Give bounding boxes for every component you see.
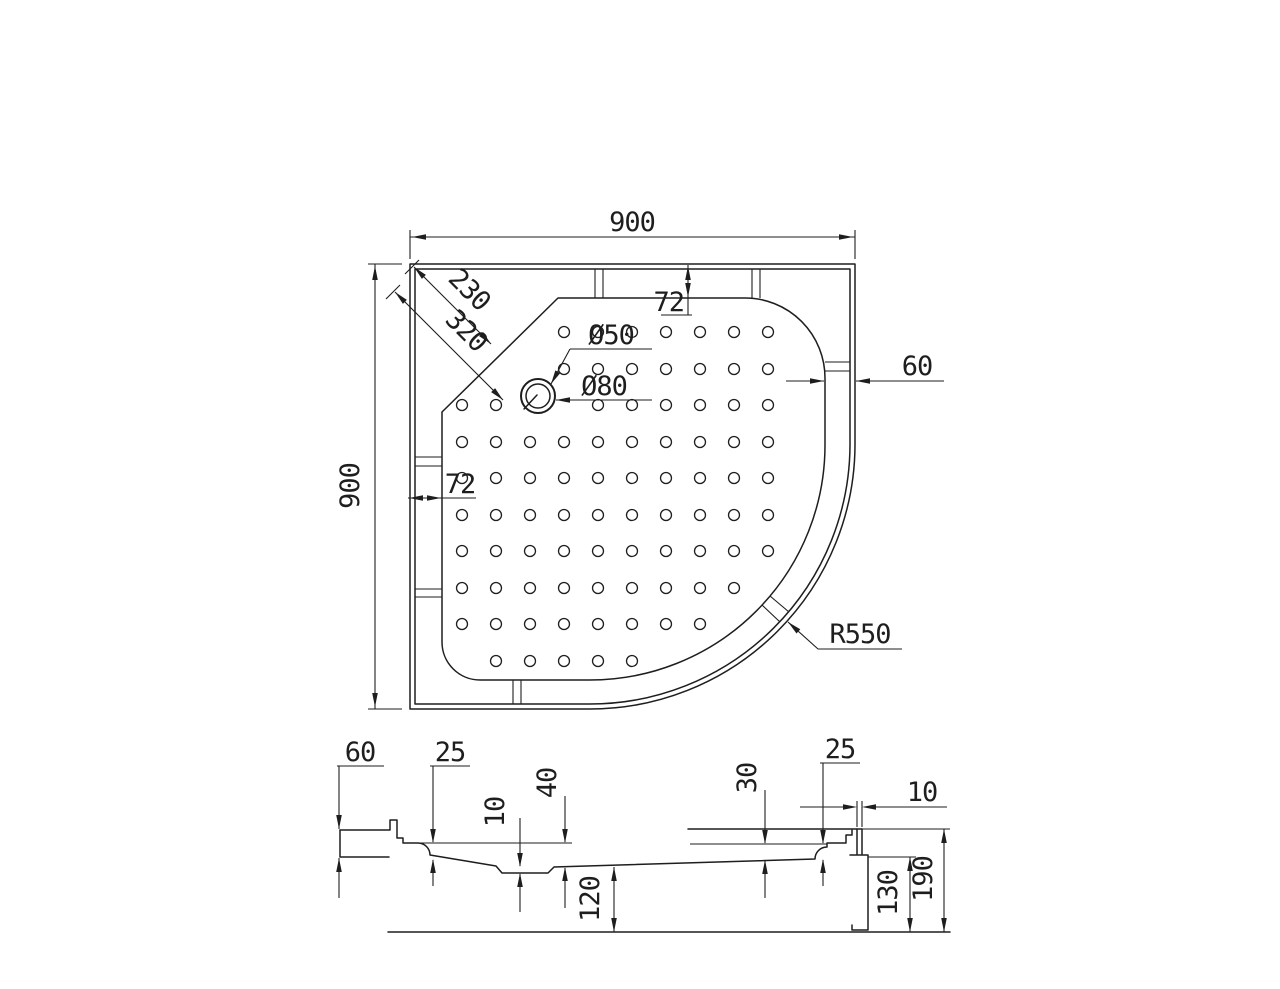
anti-slip-dot xyxy=(729,510,740,521)
dim-drain-hole-label: Ø50 xyxy=(588,320,634,351)
dim-right-floor-drop: 30 xyxy=(732,763,765,898)
drain-inner-circle xyxy=(526,384,550,408)
dim-skirt-height: 130 xyxy=(873,857,910,932)
anti-slip-dot xyxy=(491,619,502,630)
arrowhead xyxy=(412,234,426,240)
anti-slip-dot xyxy=(525,546,536,557)
anti-slip-dot xyxy=(763,473,774,484)
dim-top-frame: 72 xyxy=(653,265,692,318)
dim-corner-radius: R550 xyxy=(788,619,902,650)
anti-slip-dot xyxy=(491,583,502,594)
dim-drain-flange: Ø80 xyxy=(556,371,652,402)
arrowhead xyxy=(409,495,423,501)
anti-slip-dot xyxy=(695,546,706,557)
anti-slip-dot xyxy=(457,437,468,448)
anti-slip-dot xyxy=(695,400,706,411)
dim-top-frame-label: 72 xyxy=(653,287,684,318)
arrowhead xyxy=(412,265,426,279)
anti-slip-dot xyxy=(491,510,502,521)
anti-slip-dot xyxy=(627,364,638,375)
arrowhead xyxy=(517,853,523,867)
anti-slip-dot xyxy=(525,656,536,667)
arrowhead xyxy=(611,918,617,932)
anti-slip-dot xyxy=(627,656,638,667)
anti-slip-dot xyxy=(763,400,774,411)
anti-slip-dot xyxy=(593,437,604,448)
anti-slip-dot xyxy=(593,619,604,630)
arrowhead xyxy=(862,804,876,810)
anti-slip-dot xyxy=(559,656,570,667)
arrowhead xyxy=(820,859,826,873)
anti-slip-dot xyxy=(729,400,740,411)
arrowhead xyxy=(839,234,853,240)
dim-sump-depth: 10 xyxy=(480,797,520,912)
shower-tray-technical-drawing: 900 900 230 320 Ø50 Ø80 72 xyxy=(0,0,1280,989)
dim-230-label: 230 xyxy=(442,263,496,317)
dim-overall-height-section: 190 xyxy=(908,829,944,932)
arrowhead xyxy=(907,918,913,932)
anti-slip-dot xyxy=(525,437,536,448)
anti-slip-dot xyxy=(729,437,740,448)
anti-slip-dot xyxy=(491,437,502,448)
anti-slip-dot xyxy=(491,656,502,667)
anti-slip-dot xyxy=(695,619,706,630)
anti-slip-dot xyxy=(627,619,638,630)
dim-right-rim-drop: 25 xyxy=(820,734,860,886)
dim-right-rim-drop-label: 25 xyxy=(825,734,856,765)
anti-slip-dot xyxy=(593,473,604,484)
anti-slip-dot xyxy=(593,546,604,557)
arrowhead xyxy=(856,378,870,384)
dim-skirt-height-label: 130 xyxy=(873,870,904,916)
arrowhead xyxy=(762,830,768,844)
dim-left-rim-drop: 25 xyxy=(430,737,470,886)
anti-slip-dot xyxy=(661,437,672,448)
arrowhead xyxy=(430,829,436,843)
dim-right-frame-label: 60 xyxy=(902,351,933,382)
arrowhead xyxy=(393,290,407,304)
anti-slip-dot xyxy=(559,364,570,375)
dim-drain-flange-label: Ø80 xyxy=(581,371,627,402)
dim-bowl-depth: 120 xyxy=(575,867,614,932)
anti-slip-dot xyxy=(627,400,638,411)
arrowhead xyxy=(843,804,857,810)
arrowhead xyxy=(430,859,436,873)
dim-overall-width-label: 900 xyxy=(609,207,655,238)
arrowhead xyxy=(810,378,824,384)
dim-floor-drop: 40 xyxy=(532,768,565,908)
arrowhead xyxy=(372,266,378,280)
arrowhead xyxy=(427,495,441,501)
anti-slip-dot xyxy=(457,546,468,557)
anti-slip-dot xyxy=(763,510,774,521)
anti-slip-dot xyxy=(559,510,570,521)
anti-slip-dot xyxy=(593,656,604,667)
anti-slip-dot xyxy=(695,583,706,594)
anti-slip-dot xyxy=(661,364,672,375)
anti-slip-dot xyxy=(559,473,570,484)
arrowhead xyxy=(562,867,568,881)
anti-slip-dot xyxy=(559,327,570,338)
dim-right-floor-drop-label: 30 xyxy=(732,763,763,794)
arrowhead xyxy=(762,860,768,874)
anti-slip-dot xyxy=(525,583,536,594)
anti-slip-dot xyxy=(559,583,570,594)
anti-slip-dot xyxy=(559,437,570,448)
anti-slip-dot xyxy=(661,583,672,594)
dim-320-label: 320 xyxy=(439,304,493,358)
dim-overall-height: 900 xyxy=(335,264,402,709)
arrowhead xyxy=(336,858,342,872)
anti-slip-dot xyxy=(695,437,706,448)
dim-bowl-depth-label: 120 xyxy=(575,876,606,922)
arrowhead xyxy=(556,397,570,403)
dim-floor-drop-label: 40 xyxy=(532,768,563,799)
anti-slip-dot xyxy=(627,583,638,594)
anti-slip-dot xyxy=(627,437,638,448)
anti-slip-dot xyxy=(763,437,774,448)
anti-slip-dot xyxy=(729,546,740,557)
anti-slip-dot xyxy=(661,510,672,521)
anti-slip-dot xyxy=(661,473,672,484)
dim-ledge-height: 60 xyxy=(337,737,384,898)
anti-slip-dot xyxy=(661,546,672,557)
anti-slip-dot xyxy=(695,510,706,521)
anti-slip-dot xyxy=(457,400,468,411)
anti-slip-dot xyxy=(661,327,672,338)
anti-slip-dot xyxy=(661,619,672,630)
anti-slip-dot xyxy=(491,546,502,557)
anti-slip-dot xyxy=(763,327,774,338)
anti-slip-dot xyxy=(593,510,604,521)
anti-slip-dot xyxy=(627,510,638,521)
anti-slip-dot xyxy=(729,473,740,484)
anti-slip-dot xyxy=(491,400,502,411)
anti-slip-dot xyxy=(627,473,638,484)
dim-overall-width: 900 xyxy=(410,207,855,259)
arrowhead xyxy=(941,829,947,843)
anti-slip-dot xyxy=(661,400,672,411)
dim-overall-height-label: 900 xyxy=(335,463,366,509)
anti-slip-dot xyxy=(559,619,570,630)
arrowhead xyxy=(562,829,568,843)
anti-slip-dot xyxy=(695,473,706,484)
dim-left-rim-drop-label: 25 xyxy=(435,737,466,768)
arrowhead xyxy=(336,815,342,829)
anti-slip-dot xyxy=(729,583,740,594)
arrowhead xyxy=(372,693,378,707)
arrowhead xyxy=(685,266,691,280)
anti-slip-dot xyxy=(729,364,740,375)
section-view: 60 25 10 40 120 30 25 10 xyxy=(337,734,950,932)
anti-slip-dot xyxy=(491,473,502,484)
drain xyxy=(521,379,555,413)
section-profile xyxy=(340,820,950,932)
anti-slip-dot xyxy=(593,583,604,594)
anti-slip-dot xyxy=(525,473,536,484)
dim-sump-depth-label: 10 xyxy=(480,797,511,828)
anti-slip-dot xyxy=(457,510,468,521)
anti-slip-dot xyxy=(457,583,468,594)
anti-slip-dot xyxy=(763,546,774,557)
arrowhead xyxy=(611,867,617,881)
dim-overall-height-section-label: 190 xyxy=(908,856,939,902)
anti-slip-dot xyxy=(525,510,536,521)
dim-panel-thickness: 10 xyxy=(800,777,947,808)
plan-view: 900 900 230 320 Ø50 Ø80 72 xyxy=(335,207,944,709)
drawing-canvas: 900 900 230 320 Ø50 Ø80 72 xyxy=(0,0,1280,989)
dim-ledge-height-label: 60 xyxy=(345,737,376,768)
anti-slip-dot xyxy=(695,327,706,338)
dim-right-frame: 60 xyxy=(786,351,944,382)
arrowhead xyxy=(685,283,691,297)
anti-slip-dot xyxy=(525,619,536,630)
arrowhead xyxy=(820,830,826,844)
anti-slip-dot xyxy=(763,364,774,375)
anti-slip-dot xyxy=(729,327,740,338)
arrowhead xyxy=(941,918,947,932)
anti-slip-dot xyxy=(627,546,638,557)
arrowhead xyxy=(517,873,523,887)
anti-slip-dot xyxy=(457,619,468,630)
anti-slip-dot xyxy=(559,546,570,557)
anti-slip-dot xyxy=(695,364,706,375)
dim-corner-radius-label: R550 xyxy=(829,619,890,650)
dim-panel-thickness-label: 10 xyxy=(907,777,938,808)
dim-left-frame-label: 72 xyxy=(445,469,476,500)
